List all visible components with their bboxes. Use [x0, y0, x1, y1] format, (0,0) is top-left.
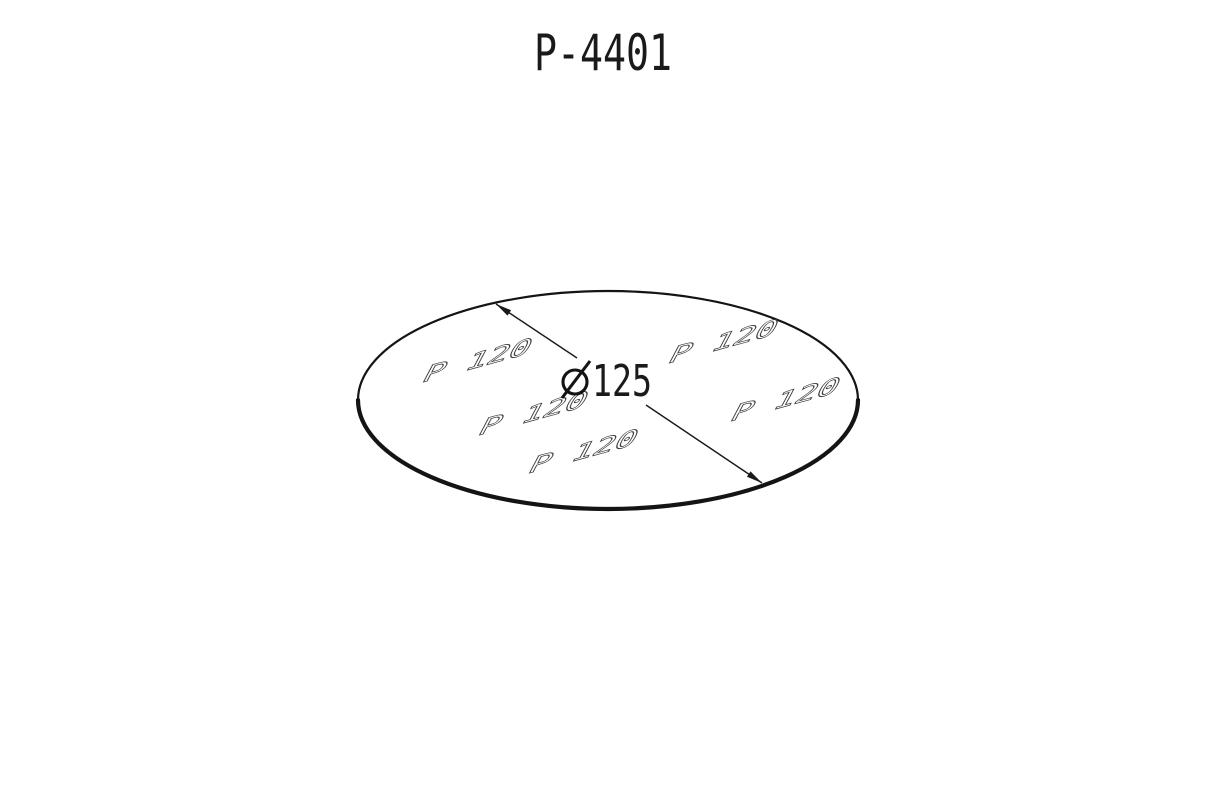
drawing-canvas: P-4401 P 120 P 120 P 120 P 120 P 120 125 [0, 0, 1205, 800]
disc-technical-drawing: P-4401 P 120 P 120 P 120 P 120 P 120 125 [0, 0, 1205, 800]
drawing-title: P-4401 [534, 24, 672, 82]
dimension-value: 125 [592, 356, 652, 407]
